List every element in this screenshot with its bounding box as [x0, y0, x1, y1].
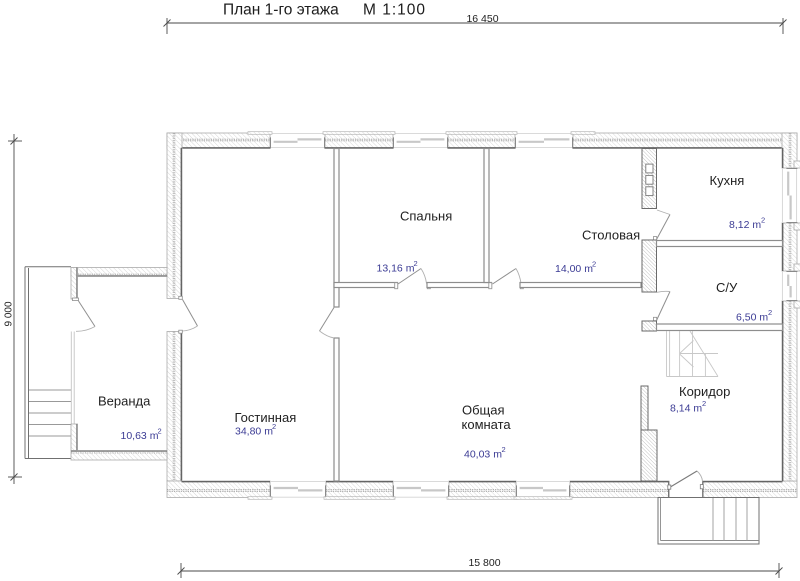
svg-text:2: 2 [158, 427, 162, 436]
svg-text:13,16 m: 13,16 m [377, 263, 415, 275]
svg-text:15 800: 15 800 [468, 557, 500, 569]
svg-text:2: 2 [761, 216, 765, 225]
svg-text:Коридор: Коридор [679, 384, 730, 399]
svg-text:10,63 m: 10,63 m [121, 430, 159, 442]
svg-text:2: 2 [702, 399, 706, 408]
svg-text:16 450: 16 450 [466, 13, 498, 25]
svg-text:Гостинная: Гостинная [235, 410, 297, 425]
svg-text:2: 2 [768, 308, 772, 317]
svg-text:40,03 m: 40,03 m [464, 449, 502, 461]
svg-text:9 000: 9 000 [4, 301, 15, 326]
svg-text:Спальня: Спальня [400, 209, 452, 224]
svg-text:14,00 m: 14,00 m [555, 263, 593, 275]
svg-text:комната: комната [462, 417, 512, 432]
svg-text:8,12 m: 8,12 m [729, 219, 761, 231]
svg-text:2: 2 [502, 445, 506, 454]
svg-text:6,50 m: 6,50 m [736, 312, 768, 324]
svg-text:2: 2 [592, 260, 596, 269]
svg-text:М 1:100: М 1:100 [363, 2, 426, 19]
svg-text:С/У: С/У [716, 280, 738, 295]
svg-text:План 1-го этажа: План 1-го этажа [223, 2, 339, 19]
svg-text:Веранда: Веранда [98, 394, 151, 409]
svg-text:2: 2 [414, 259, 418, 268]
svg-text:Общая: Общая [462, 403, 505, 418]
svg-text:2: 2 [272, 422, 276, 431]
svg-text:Столовая: Столовая [582, 228, 640, 243]
svg-text:8,14 m: 8,14 m [670, 403, 702, 415]
svg-text:34,80 m: 34,80 m [235, 426, 273, 438]
svg-text:Кухня: Кухня [710, 173, 745, 188]
